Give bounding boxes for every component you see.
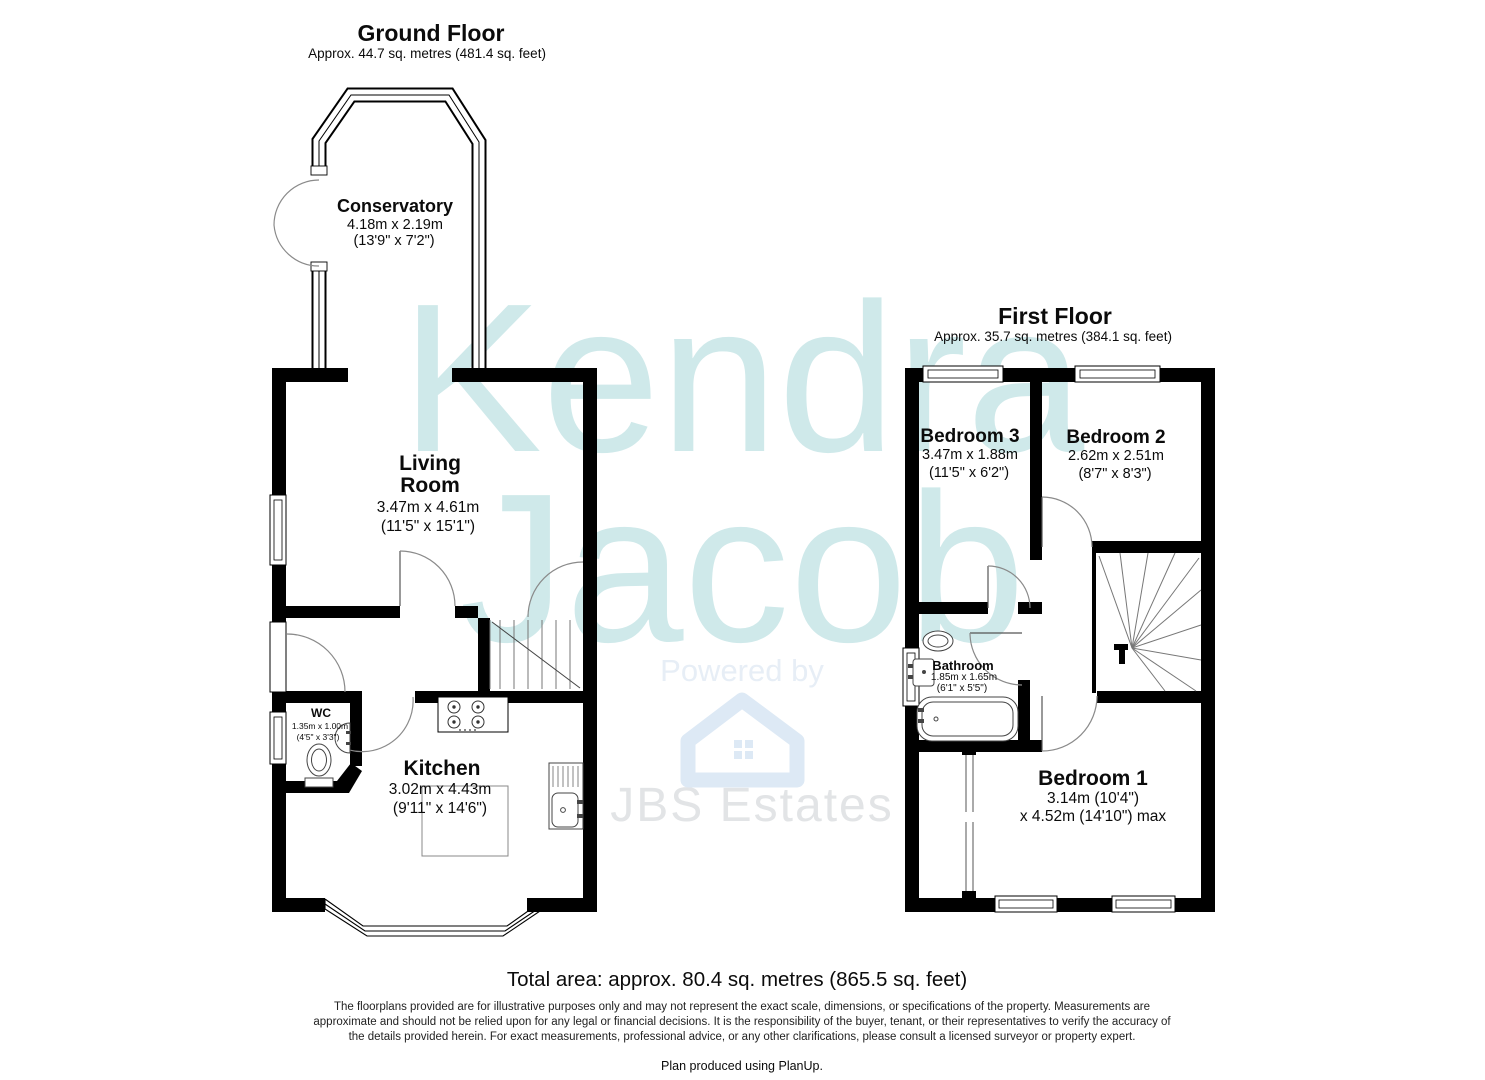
kitchen-label: Kitchen <box>403 757 480 781</box>
wc-dim-ft: (4'5" x 3'3") <box>297 732 340 742</box>
first-floor-title: First Floor <box>998 303 1112 330</box>
bedroom1-dim-line1: 3.14m (10'4") <box>1047 790 1139 808</box>
conservatory-label: Conservatory <box>337 196 453 217</box>
bedroom2-dim-ft: (8'7" x 8'3") <box>1078 466 1151 482</box>
bathroom-dim-m: 1.85m x 1.65m <box>931 672 997 683</box>
living-room-label-line1: Living <box>399 452 461 476</box>
total-area-text: Total area: approx. 80.4 sq. metres (865… <box>507 968 967 992</box>
bathroom-toilet-icon <box>923 631 953 651</box>
first-floor-subtitle: Approx. 35.7 sq. metres (384.1 sq. feet) <box>934 329 1172 344</box>
hob-icon <box>438 697 508 732</box>
bedroom2-label: Bedroom 2 <box>1066 427 1165 449</box>
wc-label: WC <box>311 706 331 720</box>
bathroom-label: Bathroom <box>932 658 993 673</box>
ground-floor-title: Ground Floor <box>358 20 505 47</box>
floorplan-page: Kendra Jacob Powered by JBS Estates <box>0 0 1485 1080</box>
ground-floor-stairs <box>490 620 580 689</box>
living-room-label-line2: Room <box>400 474 460 498</box>
bathtub-icon <box>917 697 1018 741</box>
disclaimer-line2: approximate and should not be relied upo… <box>313 1016 1170 1028</box>
disclaimer-line1: The floorplans provided are for illustra… <box>334 1001 1150 1013</box>
ground-floor-windows <box>270 495 286 764</box>
disclaimer-line3: the details provided herein. For exact m… <box>349 1031 1136 1043</box>
first-floor-stairs <box>1099 553 1201 691</box>
bedroom3-label: Bedroom 3 <box>920 426 1019 448</box>
conservatory-door-arcs <box>274 180 319 266</box>
floorplan-drawing <box>0 0 1485 1080</box>
conservatory-dim-ft: (13'9" x 7'2") <box>353 233 434 249</box>
wc-dim-m: 1.35m x 1.00m <box>292 721 348 731</box>
produced-by-text: Plan produced using PlanUp. <box>661 1059 823 1073</box>
living-room-dim-ft: (11'5" x 15'1") <box>381 518 475 536</box>
kitchen-dim-m: 3.02m x 4.43m <box>389 781 492 799</box>
kitchen-dim-ft: (9'11" x 14'6") <box>393 800 487 818</box>
bedroom1-closet-divider <box>966 755 973 891</box>
watermark-house-icon <box>688 700 797 780</box>
bathroom-dim-ft: (6'1" x 5'5") <box>937 683 987 694</box>
bedroom1-dim-line2: x 4.52m (14'10") max <box>1020 808 1166 826</box>
kitchen-sink-icon <box>549 763 583 829</box>
bedroom3-dim-ft: (11'5" x 6'2") <box>929 465 1009 481</box>
bedroom1-label: Bedroom 1 <box>1038 767 1148 791</box>
conservatory-dim-m: 4.18m x 2.19m <box>347 217 443 233</box>
bedroom2-dim-m: 2.62m x 2.51m <box>1068 448 1164 464</box>
wc-toilet-icon <box>305 744 333 787</box>
kitchen-bay-window <box>325 899 545 936</box>
ground-floor-subtitle: Approx. 44.7 sq. metres (481.4 sq. feet) <box>308 46 546 61</box>
bedroom3-dim-m: 3.47m x 1.88m <box>922 447 1018 463</box>
living-room-dim-m: 3.47m x 4.61m <box>377 499 480 517</box>
